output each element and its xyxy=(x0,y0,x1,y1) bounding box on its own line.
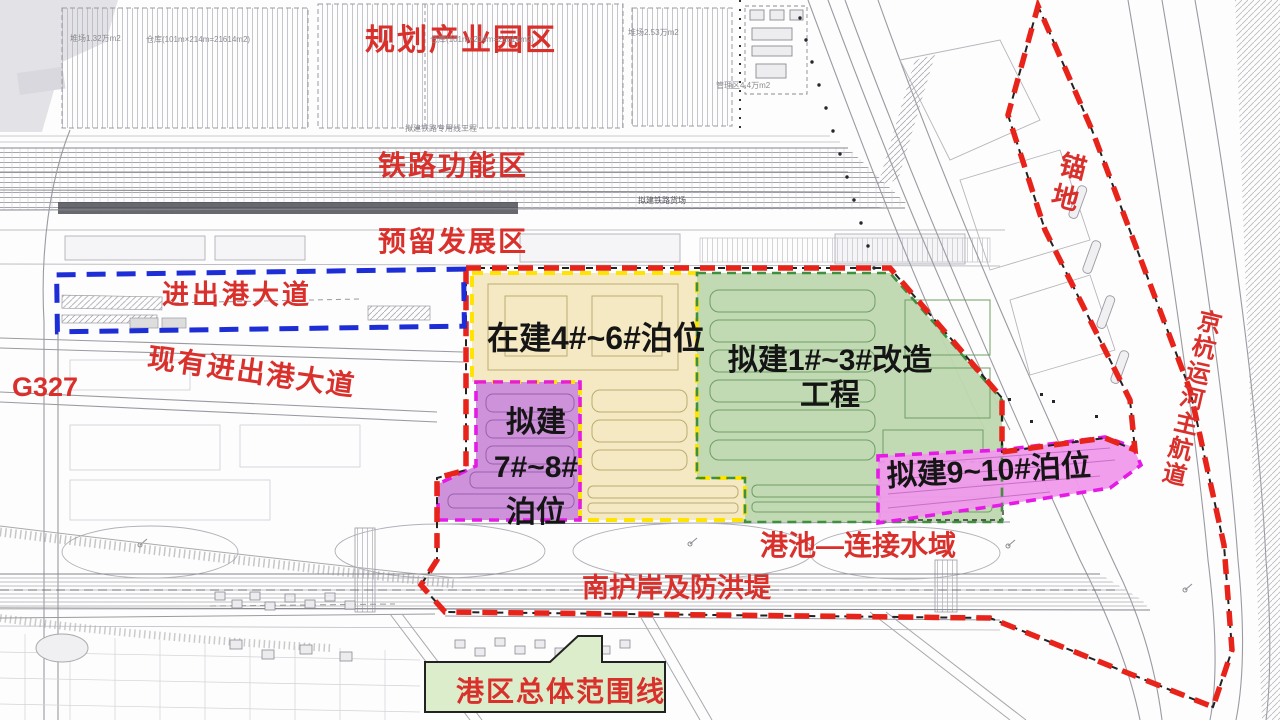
label-harbor-basin: 港池—连接水域 xyxy=(760,530,956,562)
label-g327: G327 xyxy=(12,372,78,403)
annotation-rail-yard: 拟建铁路货场 xyxy=(638,195,686,206)
label-berths-1-3-line2: 工程 xyxy=(718,379,942,414)
port-master-plan-map: 规划产业园区 铁路功能区 预留发展区 进出港大道 现有进出港大道 G327 在建… xyxy=(0,0,1280,720)
label-reserved-development-zone: 预留发展区 xyxy=(378,226,528,258)
label-berths-7-8-line2: 7#~8# xyxy=(490,445,582,490)
label-berths-1-3: 拟建1#~3#改造 工程 xyxy=(718,344,942,413)
label-berths-4-6: 在建4#~6#泊位 xyxy=(487,320,705,357)
label-berths-7-8-line3: 泊位 xyxy=(490,490,582,535)
label-railway-function-zone: 铁路功能区 xyxy=(378,150,528,182)
annotation-yard-large: 堆场2.53万m2 xyxy=(628,27,679,38)
annotation-admin-area: 管理区4.4万m2 xyxy=(716,80,770,91)
label-south-revetment: 南护岸及防洪堤 xyxy=(582,573,771,604)
label-berths-7-8: 拟建 7#~8# 泊位 xyxy=(490,400,582,535)
annotation-rail-spur: 拟建铁路专用线工程 xyxy=(405,123,477,134)
annotation-warehouse-b: 仓库(101m×214m=21614m2) xyxy=(430,34,534,45)
label-port-boundary: 港区总体范围线 xyxy=(456,676,666,708)
label-port-avenue: 进出港大道 xyxy=(162,280,312,311)
annotation-warehouse-a: 仓库(101m×214m=21614m2) xyxy=(146,34,250,45)
label-berths-1-3-line1: 拟建1#~3#改造 xyxy=(718,344,942,379)
annotation-yard-small: 堆场1.32万m2 xyxy=(70,33,121,44)
label-berths-7-8-line1: 拟建 xyxy=(490,400,582,445)
